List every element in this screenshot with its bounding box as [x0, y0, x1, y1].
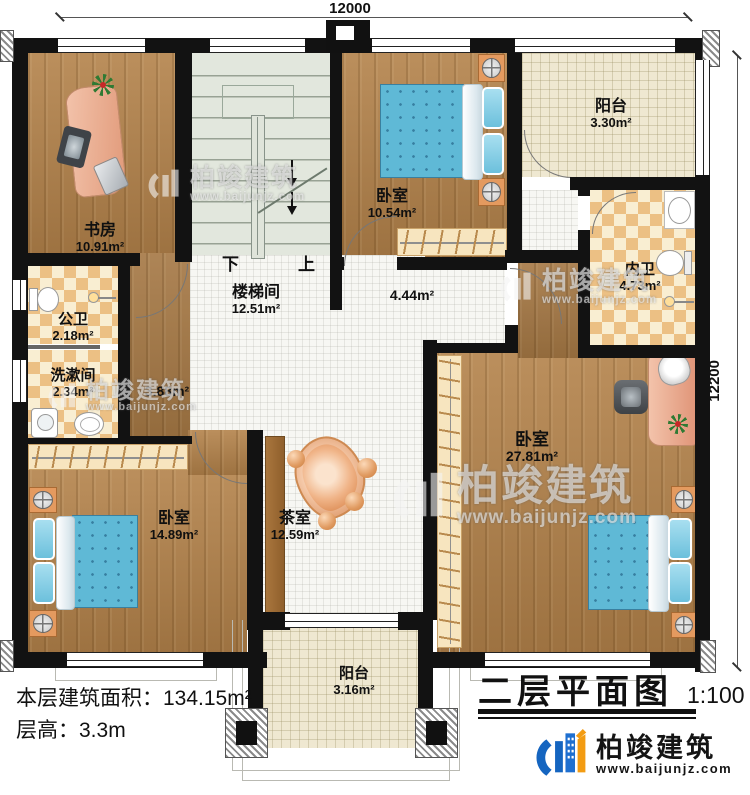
- room-area: 3.16m²: [333, 683, 374, 698]
- dimension-line-top: [60, 17, 688, 18]
- stair-arrow-stem: [291, 160, 293, 178]
- window: [695, 60, 710, 175]
- room-name: 内卫: [619, 262, 660, 279]
- tea-stool: [318, 512, 336, 530]
- room-area: 12.59m²: [271, 528, 319, 543]
- sink: [668, 197, 691, 224]
- drawing-scale: 1:100: [687, 682, 745, 709]
- room-label-washroom: 洗漱间 2.34m²: [50, 368, 95, 399]
- room-name: 卧室: [368, 188, 416, 206]
- sink-basin: [80, 417, 100, 432]
- room-name: 卧室: [506, 430, 558, 449]
- bed-pillow: [33, 562, 55, 604]
- room-label-hall: 3.88m²: [145, 384, 189, 400]
- room-area: 10.91m²: [76, 240, 124, 255]
- room-name: 阳台: [333, 666, 374, 683]
- bed-sheet-fold: [56, 516, 75, 610]
- floor-area-value: 134.15m²: [163, 687, 252, 710]
- corridor-upper-floor: [522, 190, 578, 250]
- room-label-tea-room: 茶室 12.59m²: [271, 510, 319, 542]
- stair-rail: [251, 115, 265, 259]
- dimension-top-label: 12000: [320, 0, 380, 17]
- room-name: 公卫: [52, 312, 93, 329]
- room-label-stairwell: 楼梯间 12.51m²: [232, 284, 280, 316]
- plant-icon: [92, 74, 114, 96]
- tea-stool: [357, 458, 377, 478]
- nightstand: [671, 486, 697, 513]
- window: [515, 38, 675, 53]
- bed-sheet-fold: [648, 515, 669, 612]
- balcony-sliding-door: [285, 613, 398, 628]
- stair-arrow-down: [287, 178, 297, 187]
- room-name: 书房: [76, 222, 124, 240]
- nightstand: [671, 612, 697, 638]
- title-block: 二层平面图 1:100: [478, 664, 745, 713]
- room-area: 10.54m²: [368, 206, 416, 221]
- window: [210, 38, 305, 53]
- brand-url: www.baijunjz.com: [596, 762, 732, 776]
- room-area: 3.30m²: [590, 116, 631, 131]
- column-core: [426, 721, 447, 745]
- room-label-bedroom-top: 卧室 10.54m²: [368, 188, 416, 220]
- room-label-balcony-top: 阳台 3.30m²: [590, 98, 631, 130]
- room-name: 阳台: [590, 98, 631, 116]
- brand-name: 柏竣建筑: [596, 734, 732, 762]
- chimney-notch: [336, 26, 354, 40]
- faucet-line: [98, 297, 116, 299]
- room-label-study: 书房 10.91m²: [76, 222, 124, 254]
- wardrobe: [437, 355, 462, 648]
- wardrobe: [397, 228, 507, 256]
- dimension-line-right: [737, 55, 738, 668]
- room-area: 12.51m²: [232, 302, 280, 317]
- stair-rail-line: [257, 117, 258, 255]
- title-underline-thick: [478, 709, 696, 714]
- nightstand: [29, 487, 57, 513]
- faucet-line: [674, 301, 694, 303]
- room-label-public-bath: 公卫 2.18m²: [52, 312, 93, 343]
- toilet-tank: [684, 251, 692, 275]
- room-area: 14.89m²: [150, 528, 198, 543]
- stair-up-label: 上: [298, 250, 315, 275]
- bed-mattress: [588, 515, 650, 610]
- room-name: 楼梯间: [232, 284, 280, 302]
- room-name: 洗漱间: [50, 368, 95, 385]
- title-underline-thin: [478, 717, 696, 719]
- floor-area-label: 本层建筑面积：: [16, 687, 163, 710]
- bed-pillow: [482, 133, 504, 175]
- room-label-bedroom-master: 卧室 27.81m²: [506, 430, 558, 465]
- room-area: 2.18m²: [52, 329, 93, 344]
- tea-stool: [287, 450, 305, 468]
- room-name: 茶室: [271, 510, 319, 528]
- floor-height-text: 层高：3.3m: [16, 714, 126, 744]
- room-name: 卧室: [150, 510, 198, 528]
- room-label-corridor: 4.44m²: [390, 288, 434, 304]
- master-chair-seat: [621, 387, 641, 407]
- wardrobe: [28, 444, 188, 470]
- bed-pillow: [668, 518, 692, 560]
- room-area: 4.44m²: [390, 288, 434, 304]
- floor-plan-canvas: 12000 12200: [0, 0, 750, 795]
- brand-logo-icon: [536, 726, 588, 784]
- inner-bath-door-gap: [578, 196, 590, 230]
- window: [67, 652, 203, 667]
- room-area: 2.34m²: [50, 385, 95, 400]
- stair-arrow-down: [287, 206, 297, 215]
- brand-logo: 柏竣建筑 www.baijunjz.com: [536, 726, 732, 784]
- toilet-bowl: [37, 287, 59, 312]
- page-title: 二层平面图: [478, 664, 673, 713]
- stair-down-label: 下: [222, 250, 239, 275]
- bed-pillow: [668, 562, 692, 604]
- room-area: 3.88m²: [145, 384, 189, 400]
- floor-height-label: 层高：: [16, 719, 79, 742]
- floor-area-text: 本层建筑面积：134.15m²: [16, 682, 252, 712]
- nightstand: [29, 610, 57, 637]
- room-label-balcony-bottom: 阳台 3.16m²: [333, 666, 374, 697]
- nightstand: [478, 178, 505, 206]
- bed-mattress: [380, 84, 464, 178]
- washer-door: [37, 414, 54, 431]
- bed-pillow: [33, 518, 55, 560]
- corner-hatch: [0, 640, 14, 672]
- stair-landing-outline: [222, 85, 294, 119]
- tea-stool: [345, 492, 364, 511]
- room-label-inner-bath: 内卫 4.73m²: [619, 262, 660, 293]
- column-core: [236, 721, 257, 745]
- floor-height-value: 3.3m: [79, 719, 126, 742]
- room-area: 4.73m²: [619, 279, 660, 294]
- room-area: 27.81m²: [506, 449, 558, 465]
- window: [12, 280, 27, 310]
- window: [372, 38, 470, 53]
- room-label-bedroom-left: 卧室 14.89m²: [150, 510, 198, 542]
- corner-hatch: [0, 30, 14, 62]
- bed-pillow: [482, 87, 504, 129]
- window: [12, 360, 27, 402]
- bed-sheet-fold: [462, 84, 483, 180]
- window: [58, 38, 145, 53]
- plant-icon: [668, 414, 688, 434]
- nightstand: [478, 54, 505, 82]
- bed-mattress: [72, 515, 138, 608]
